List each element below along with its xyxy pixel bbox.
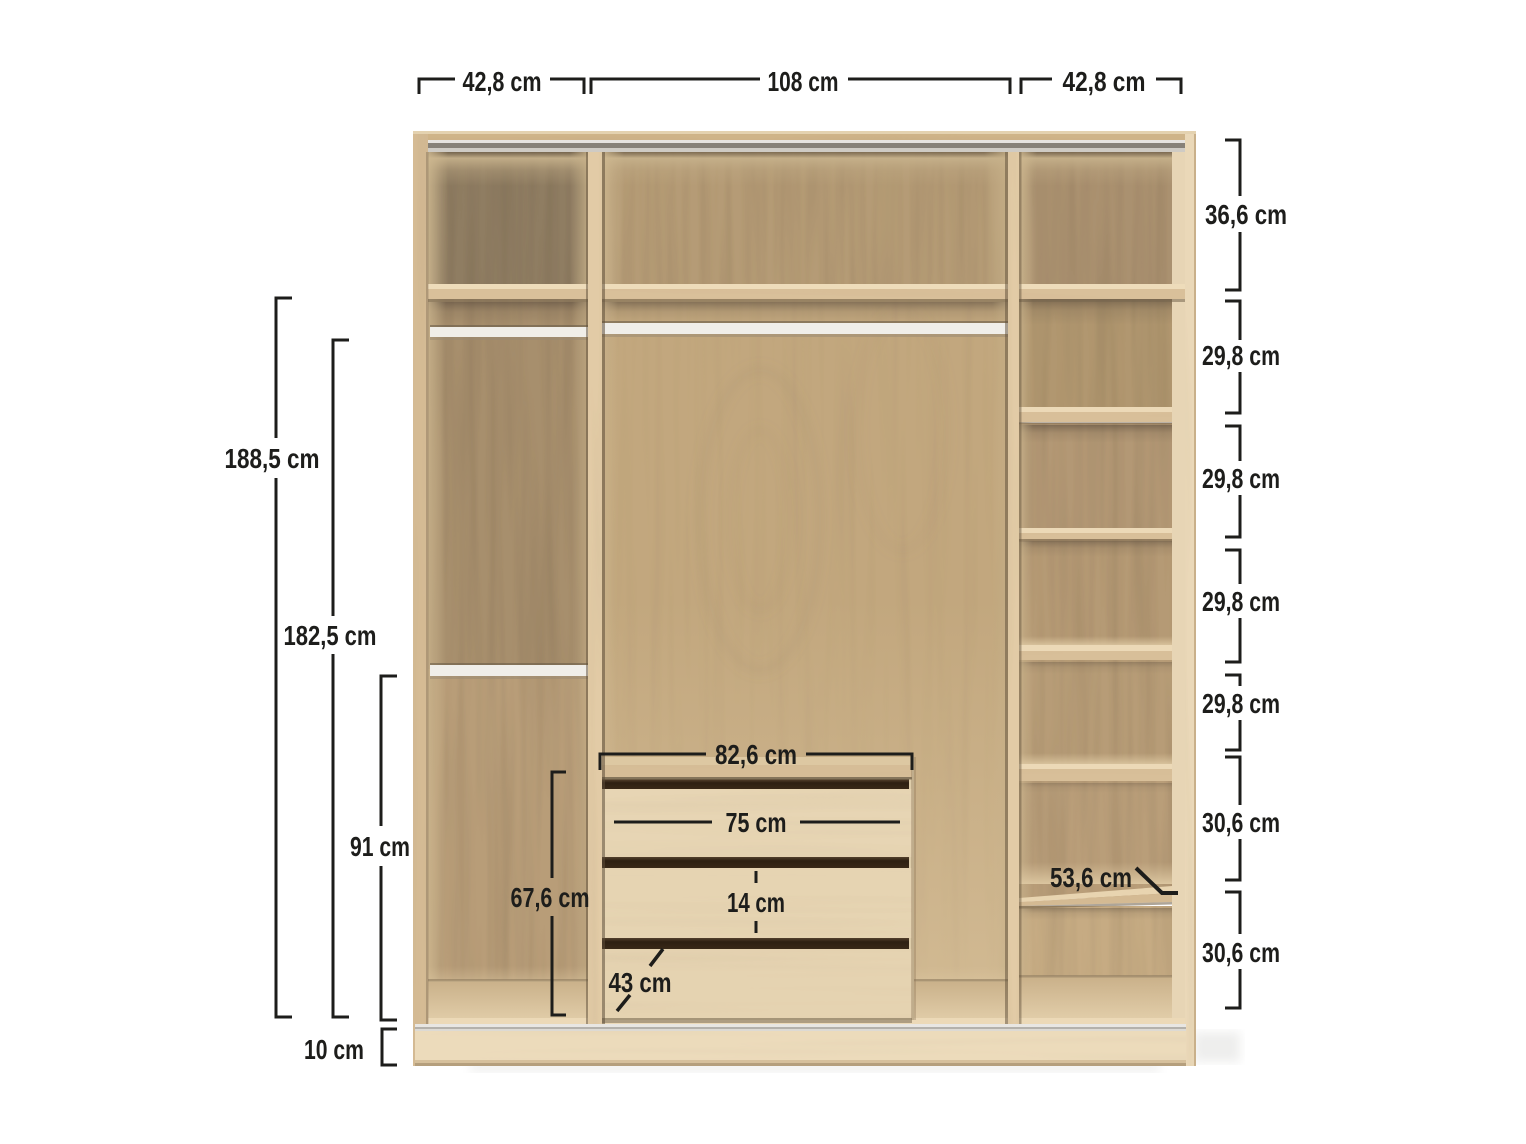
- svg-text:82,6 cm: 82,6 cm: [715, 739, 797, 770]
- svg-text:42,8 cm: 42,8 cm: [463, 66, 542, 97]
- svg-text:30,6 cm: 30,6 cm: [1202, 807, 1280, 838]
- svg-text:14 cm: 14 cm: [727, 887, 785, 918]
- svg-text:29,8 cm: 29,8 cm: [1202, 688, 1280, 719]
- svg-text:29,8 cm: 29,8 cm: [1202, 340, 1280, 371]
- svg-text:91 cm: 91 cm: [350, 831, 410, 862]
- svg-text:182,5 cm: 182,5 cm: [284, 620, 377, 651]
- svg-text:42,8 cm: 42,8 cm: [1063, 66, 1146, 97]
- svg-text:30,6 cm: 30,6 cm: [1202, 937, 1280, 968]
- svg-text:108 cm: 108 cm: [768, 66, 839, 97]
- svg-text:10 cm: 10 cm: [304, 1034, 364, 1065]
- svg-text:43 cm: 43 cm: [609, 967, 672, 998]
- svg-text:36,6 cm: 36,6 cm: [1205, 199, 1287, 230]
- svg-text:75 cm: 75 cm: [726, 807, 787, 838]
- svg-text:188,5 cm: 188,5 cm: [225, 443, 320, 474]
- svg-text:53,6 cm: 53,6 cm: [1050, 862, 1132, 893]
- svg-text:29,8 cm: 29,8 cm: [1202, 463, 1280, 494]
- svg-text:29,8 cm: 29,8 cm: [1202, 586, 1280, 617]
- svg-text:67,6 cm: 67,6 cm: [511, 882, 590, 913]
